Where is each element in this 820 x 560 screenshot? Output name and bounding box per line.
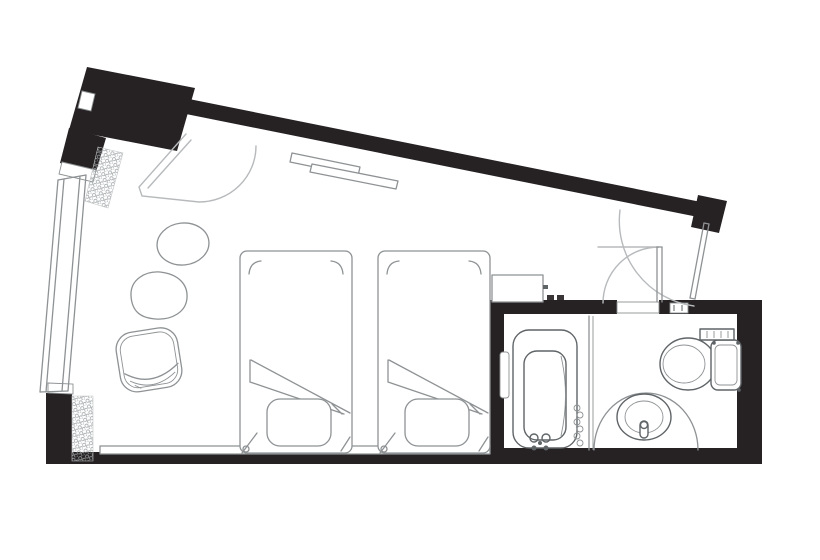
curtains	[72, 134, 256, 461]
armchair	[114, 325, 185, 394]
window-wall	[40, 175, 86, 392]
cabinet-top	[492, 275, 543, 302]
toilet-hinge	[736, 341, 740, 345]
floor-plan	[0, 0, 820, 560]
bathroom-door	[598, 247, 662, 303]
toilet-control-panel	[700, 329, 734, 340]
bathtub	[500, 330, 583, 451]
lounge-corner	[114, 220, 211, 394]
twin-bed-1	[240, 251, 352, 453]
counter-cabinet	[492, 275, 564, 302]
wall-switch	[547, 295, 554, 300]
armchair-outer	[114, 325, 185, 394]
round-side-table	[155, 220, 211, 267]
bathroom-wall-bottom	[490, 448, 762, 464]
vanity	[594, 393, 698, 450]
window-sill-notch	[48, 383, 73, 394]
grab-bar	[500, 352, 509, 398]
bathroom	[500, 316, 741, 451]
tv-shelf	[290, 153, 398, 189]
wall-switch	[557, 295, 564, 300]
bathtub-rim	[513, 330, 577, 448]
bathroom-door-swing	[603, 247, 659, 303]
coffee-table	[131, 272, 187, 319]
toilet-bowl	[660, 338, 716, 390]
curtain-hatch-bottom	[72, 396, 93, 461]
floor-plan-canvas	[0, 0, 820, 560]
toilet-hinge	[712, 341, 716, 345]
pillow	[405, 399, 469, 446]
bathroom-door-threshold	[617, 302, 659, 313]
pillow	[267, 399, 331, 446]
toilet	[660, 329, 741, 392]
entrance-door-leaf-cap	[690, 298, 695, 299]
twin-bed-2	[378, 251, 490, 453]
corridor-wall	[186, 99, 706, 218]
cabinet-knob	[543, 285, 548, 289]
wall-fixture-dot	[737, 388, 741, 392]
